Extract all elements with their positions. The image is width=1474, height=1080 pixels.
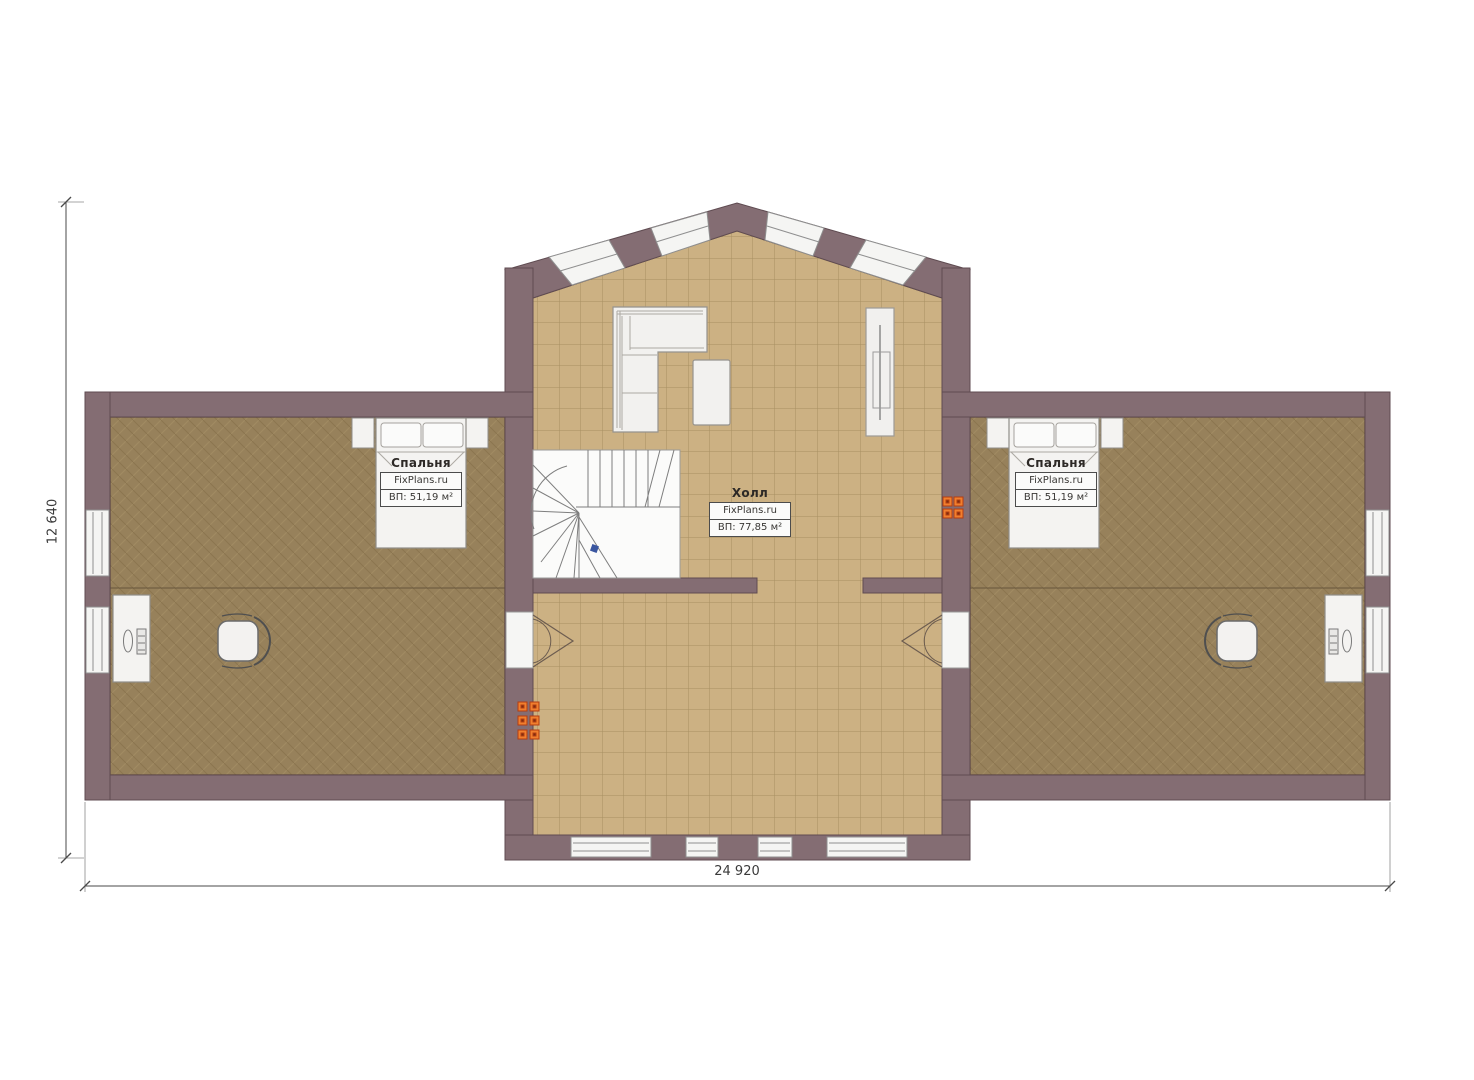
window [86, 607, 109, 673]
wall-leftwing-bottom [85, 775, 533, 800]
wall-rightwing-bottom [942, 775, 1390, 800]
window [686, 837, 718, 857]
room-label-bedroom-right: Спальня FixPlans.ru ВП: 51,19 м² [1015, 456, 1097, 507]
window [827, 837, 907, 857]
wall-rightwing-right [1365, 392, 1390, 800]
room-area-label: ВП: 51,19 м² [1015, 489, 1097, 507]
pillow [1014, 423, 1054, 447]
desk-right [1325, 595, 1362, 682]
floor-plan-canvas: Спальня FixPlans.ru ВП: 51,19 м² Холл Fi… [0, 0, 1474, 1080]
room-area-label: ВП: 77,85 м² [709, 519, 791, 537]
dimension-height-label: 12 640 [46, 477, 61, 567]
wall-leftwing-top [85, 392, 533, 417]
floor-plan-drawing [0, 0, 1474, 1080]
wall-hall-left [505, 268, 533, 860]
desk-left [113, 595, 150, 682]
tv-console [866, 308, 894, 436]
brand-label: FixPlans.ru [380, 472, 462, 490]
wall-hall-right [942, 268, 970, 860]
wall-rightwing-top [942, 392, 1390, 417]
wall-stub-left [533, 578, 757, 593]
nightstand [987, 418, 1009, 448]
coffee-table [693, 360, 730, 425]
brand-label: FixPlans.ru [1015, 472, 1097, 490]
nightstand [1101, 418, 1123, 448]
window [758, 837, 792, 857]
room-name: Холл [732, 486, 768, 500]
room-area-label: ВП: 51,19 м² [380, 489, 462, 507]
room-name: Спальня [1026, 456, 1086, 470]
window [1366, 510, 1389, 576]
pillow [423, 423, 463, 447]
window [571, 837, 651, 857]
wall-stub-right [863, 578, 942, 593]
window [1366, 607, 1389, 673]
pillow [381, 423, 421, 447]
staircase [531, 450, 680, 578]
room-label-bedroom-left: Спальня FixPlans.ru ВП: 51,19 м² [380, 456, 462, 507]
window [86, 510, 109, 576]
dimension-width-label: 24 920 [687, 864, 787, 879]
room-label-hall: Холл FixPlans.ru ВП: 77,85 м² [709, 486, 791, 537]
wall-leftwing-left [85, 392, 110, 800]
dimension-line-vertical [58, 197, 84, 863]
room-name: Спальня [391, 456, 451, 470]
pillow [1056, 423, 1096, 447]
nightstand [466, 418, 488, 448]
brand-label: FixPlans.ru [709, 502, 791, 520]
nightstand [352, 418, 374, 448]
